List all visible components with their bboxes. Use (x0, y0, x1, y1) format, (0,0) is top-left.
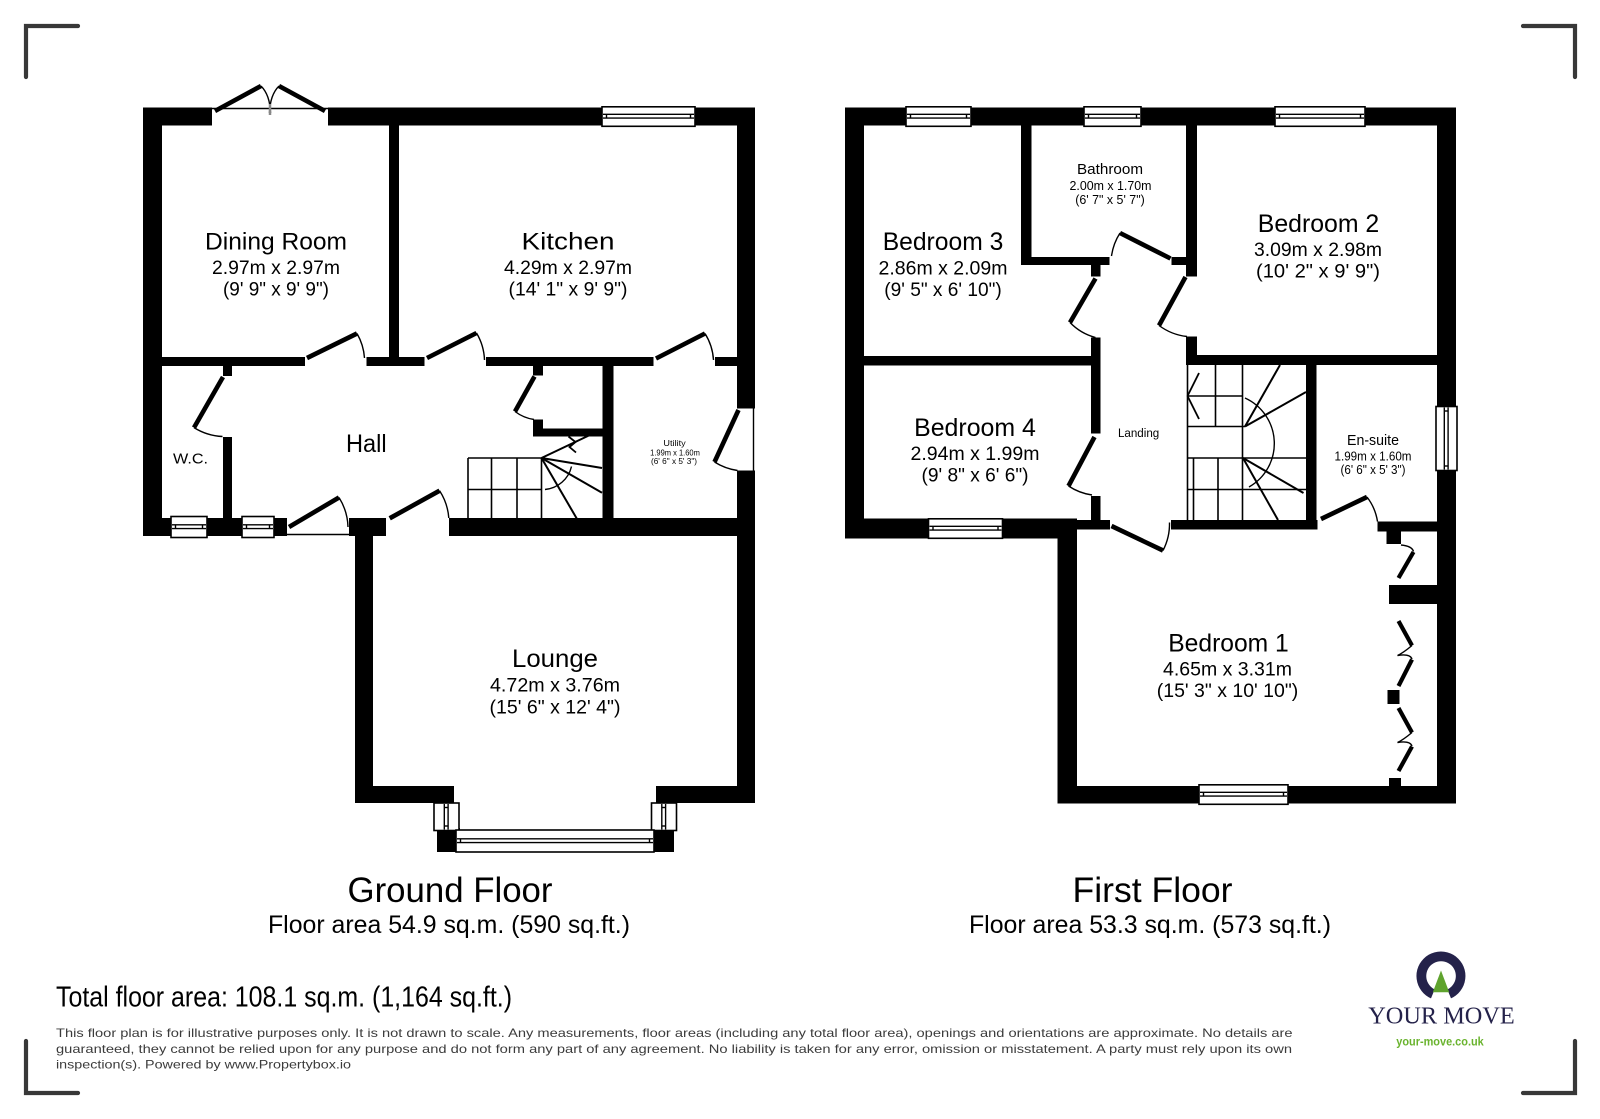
svg-text:First Floor: First Floor (1073, 871, 1233, 910)
svg-text:Bedroom 3: Bedroom 3 (883, 228, 1004, 256)
svg-text:inspection(s). Powered by www.: inspection(s). Powered by www.Propertybo… (56, 1058, 351, 1072)
svg-text:4.72m x 3.76m: 4.72m x 3.76m (490, 676, 620, 697)
svg-text:2.97m x 2.97m: 2.97m x 2.97m (212, 258, 340, 279)
svg-text:(6' 7" x 5' 7"): (6' 7" x 5' 7") (1075, 192, 1145, 207)
svg-text:Bathroom: Bathroom (1077, 162, 1143, 178)
svg-text:This floor plan is for illustr: This floor plan is for illustrative purp… (56, 1026, 1293, 1040)
svg-text:Utility: Utility (663, 438, 686, 448)
svg-text:Total floor area: 108.1 sq.m.: Total floor area: 108.1 sq.m. (1,164 sq.… (56, 982, 512, 1014)
svg-text:your-move.co.uk: your-move.co.uk (1396, 1037, 1484, 1049)
svg-text:guaranteed, they cannot be rel: guaranteed, they cannot be relied upon f… (56, 1042, 1292, 1056)
svg-text:W.C.: W.C. (173, 450, 208, 467)
svg-text:YOUR MOVE: YOUR MOVE (1368, 1003, 1515, 1030)
svg-text:Bedroom 4: Bedroom 4 (914, 414, 1036, 442)
svg-text:(15' 3" x 10' 10"): (15' 3" x 10' 10") (1157, 680, 1299, 702)
svg-text:2.94m x 1.99m: 2.94m x 1.99m (911, 443, 1040, 465)
svg-text:Floor area 54.9 sq.m. (590 sq.: Floor area 54.9 sq.m. (590 sq.ft.) (268, 911, 630, 939)
svg-text:Ground Floor: Ground Floor (348, 871, 553, 910)
svg-text:4.65m x 3.31m: 4.65m x 3.31m (1163, 659, 1292, 681)
svg-text:Bedroom 2: Bedroom 2 (1258, 210, 1380, 238)
svg-text:(15' 6" x 12' 4"): (15' 6" x 12' 4") (490, 697, 621, 718)
svg-text:(9' 5" x 6' 10"): (9' 5" x 6' 10") (884, 279, 1002, 301)
svg-text:2.86m x 2.09m: 2.86m x 2.09m (879, 258, 1008, 280)
svg-text:Kitchen: Kitchen (522, 228, 615, 255)
svg-text:(9' 8" x 6' 6"): (9' 8" x 6' 6") (922, 465, 1029, 487)
svg-text:2.00m x 1.70m: 2.00m x 1.70m (1070, 178, 1152, 193)
svg-text:(10' 2" x 9' 9"): (10' 2" x 9' 9") (1256, 261, 1380, 283)
svg-text:(9' 9" x 9' 9"): (9' 9" x 9' 9") (223, 280, 329, 301)
svg-text:4.29m x 2.97m: 4.29m x 2.97m (504, 258, 632, 279)
svg-text:En-suite: En-suite (1347, 433, 1399, 449)
svg-text:(14' 1" x 9' 9"): (14' 1" x 9' 9") (509, 280, 628, 301)
svg-text:Hall: Hall (346, 430, 387, 458)
svg-text:Dining Room: Dining Room (205, 228, 347, 255)
svg-text:Bedroom 1: Bedroom 1 (1168, 630, 1289, 658)
svg-text:Landing: Landing (1118, 426, 1159, 440)
svg-text:3.09m x 2.98m: 3.09m x 2.98m (1254, 239, 1382, 261)
svg-text:Lounge: Lounge (512, 645, 598, 673)
svg-text:(6' 6" x 5' 3"): (6' 6" x 5' 3") (1341, 462, 1406, 477)
svg-text:Floor area 53.3 sq.m. (573 sq.: Floor area 53.3 sq.m. (573 sq.ft.) (969, 911, 1331, 939)
svg-text:(6' 6" x 5' 3"): (6' 6" x 5' 3") (651, 457, 697, 466)
